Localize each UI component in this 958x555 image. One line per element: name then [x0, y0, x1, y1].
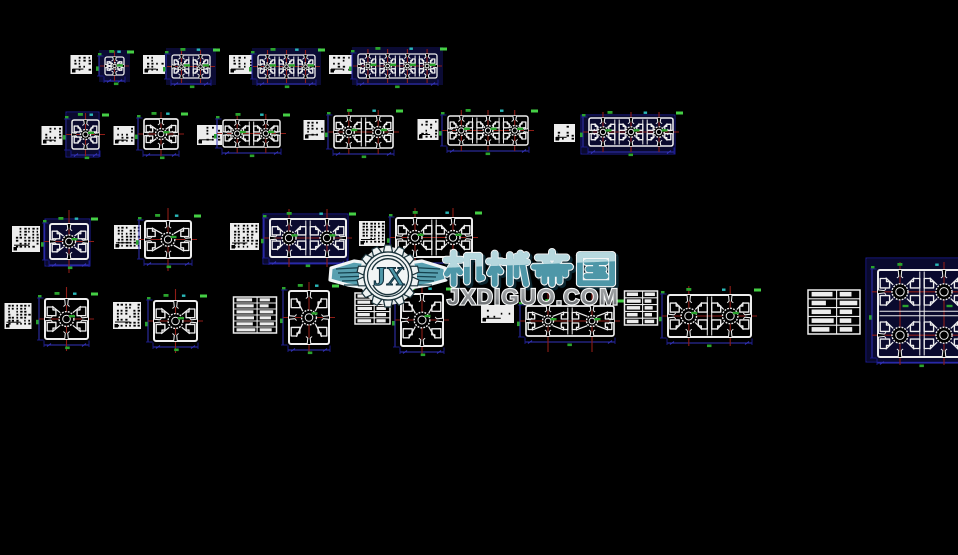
svg-text:JX: JX: [373, 262, 405, 291]
svg-text:JXDIGUO.COM: JXDIGUO.COM: [447, 285, 619, 310]
